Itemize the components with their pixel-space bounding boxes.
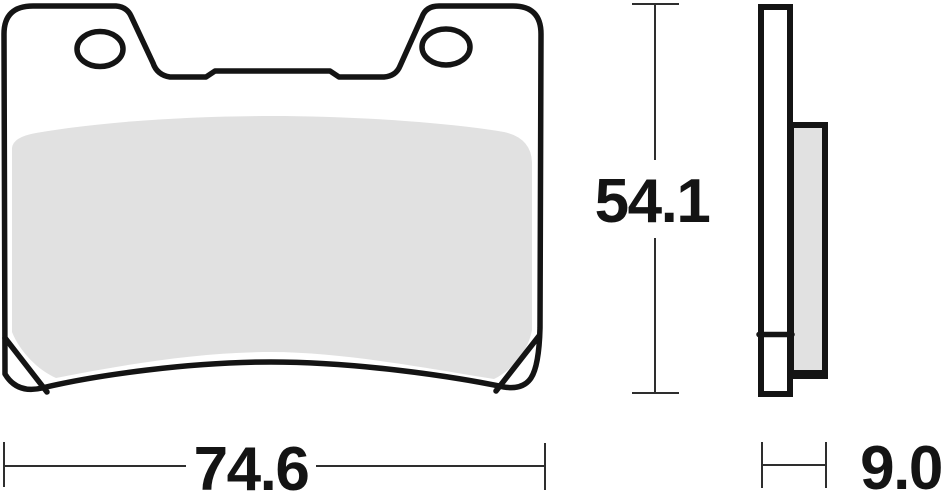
width-dimension: 74.6: [4, 435, 545, 492]
width-dimension-label: 74.6: [194, 435, 309, 492]
drawing-svg: 74.6 54.1 9.0: [0, 0, 945, 492]
side-view: [759, 7, 828, 394]
brake-pad-technical-drawing: 74.6 54.1 9.0: [0, 0, 945, 492]
mounting-hole-right: [422, 29, 470, 65]
front-view: [4, 6, 541, 392]
height-dimension-label: 54.1: [595, 167, 710, 236]
friction-material-front: [12, 116, 532, 379]
thickness-dimension-label: 9.0: [860, 434, 942, 492]
mounting-hole-left: [77, 32, 123, 67]
thickness-dimension: 9.0: [762, 434, 942, 492]
friction-material-side: [791, 125, 825, 376]
height-dimension: 54.1: [595, 4, 710, 393]
